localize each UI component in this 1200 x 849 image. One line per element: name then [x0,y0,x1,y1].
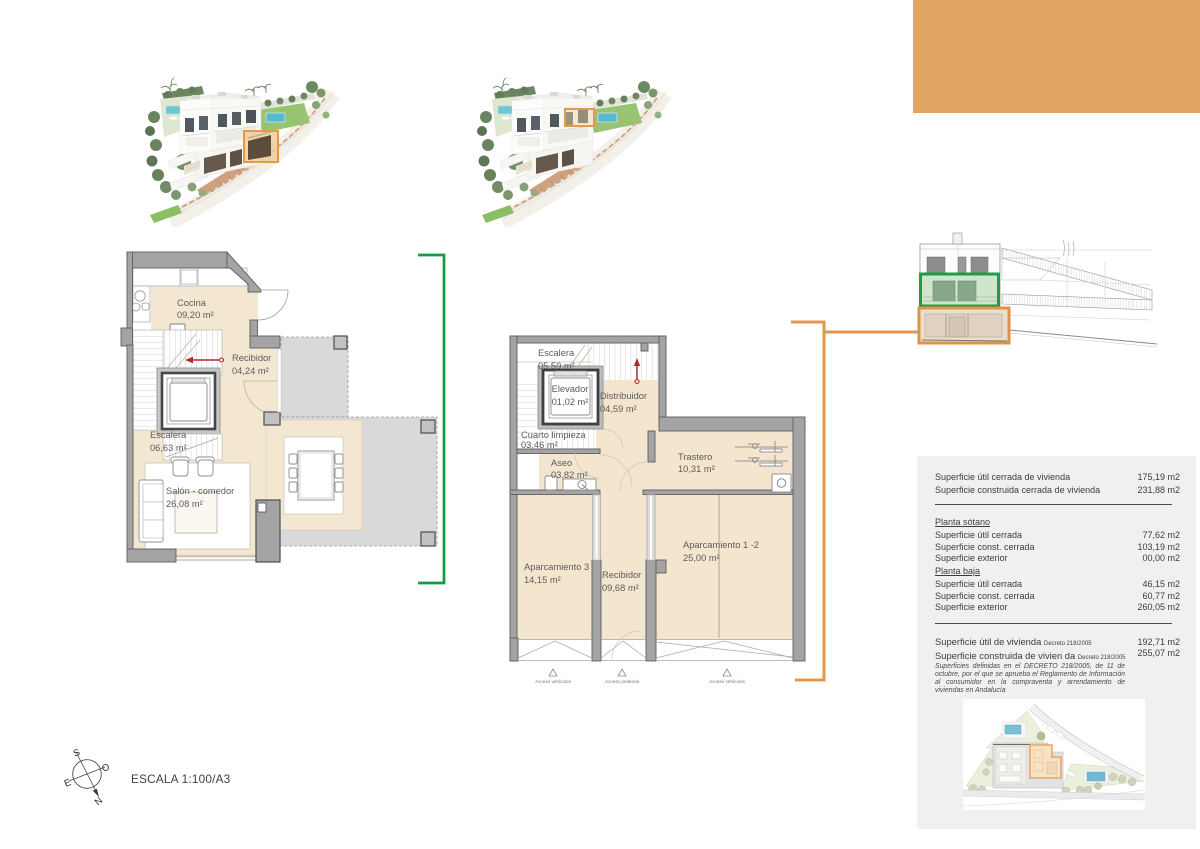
svg-text:Aseo: Aseo [551,458,572,468]
svg-text:Acceso peatonal: Acceso peatonal [605,679,639,684]
svg-text:Acceso vehículos: Acceso vehículos [709,679,745,684]
svg-text:01,02 m²: 01,02 m² [552,397,589,407]
svg-text:05,59 m²: 05,59 m² [538,361,575,371]
svg-text:Escalera: Escalera [538,348,575,358]
svg-text:Distribuidor: Distribuidor [600,391,647,401]
svg-text:25,00 m²: 25,00 m² [683,553,720,563]
svg-text:03,82 m²: 03,82 m² [551,470,588,480]
svg-text:Trastero: Trastero [678,452,712,462]
svg-text:09,20 m²: 09,20 m² [177,310,214,320]
svg-text:Acceso vehículos: Acceso vehículos [535,679,571,684]
svg-text:14,15 m²: 14,15 m² [524,575,561,585]
svg-text:10,31 m²: 10,31 m² [678,464,715,474]
svg-text:E: E [63,777,73,790]
svg-text:Aparcamiento 3: Aparcamiento 3 [524,562,589,572]
svg-text:Cocina: Cocina [177,298,207,308]
svg-text:S: S [72,747,82,760]
svg-text:03,46 m²: 03,46 m² [521,440,558,450]
svg-text:Elevador: Elevador [552,384,589,394]
svg-text:Recibidor: Recibidor [232,353,271,363]
svg-text:09,68 m²: 09,68 m² [602,583,639,593]
svg-text:04,59 m²: 04,59 m² [600,404,637,414]
svg-text:Cuarto limpieza: Cuarto limpieza [521,430,586,440]
svg-text:06,63 m²: 06,63 m² [150,443,187,453]
svg-text:N: N [93,795,105,808]
svg-text:O: O [100,762,111,775]
svg-text:Salón - comedor: Salón - comedor [166,486,234,496]
svg-text:04,24 m²: 04,24 m² [232,366,269,376]
svg-text:26,08 m²: 26,08 m² [166,499,203,509]
svg-text:Escalera: Escalera [150,430,187,440]
svg-text:Recibidor: Recibidor [602,570,641,580]
svg-text:Aparcamiento 1 -2: Aparcamiento 1 -2 [683,540,759,550]
